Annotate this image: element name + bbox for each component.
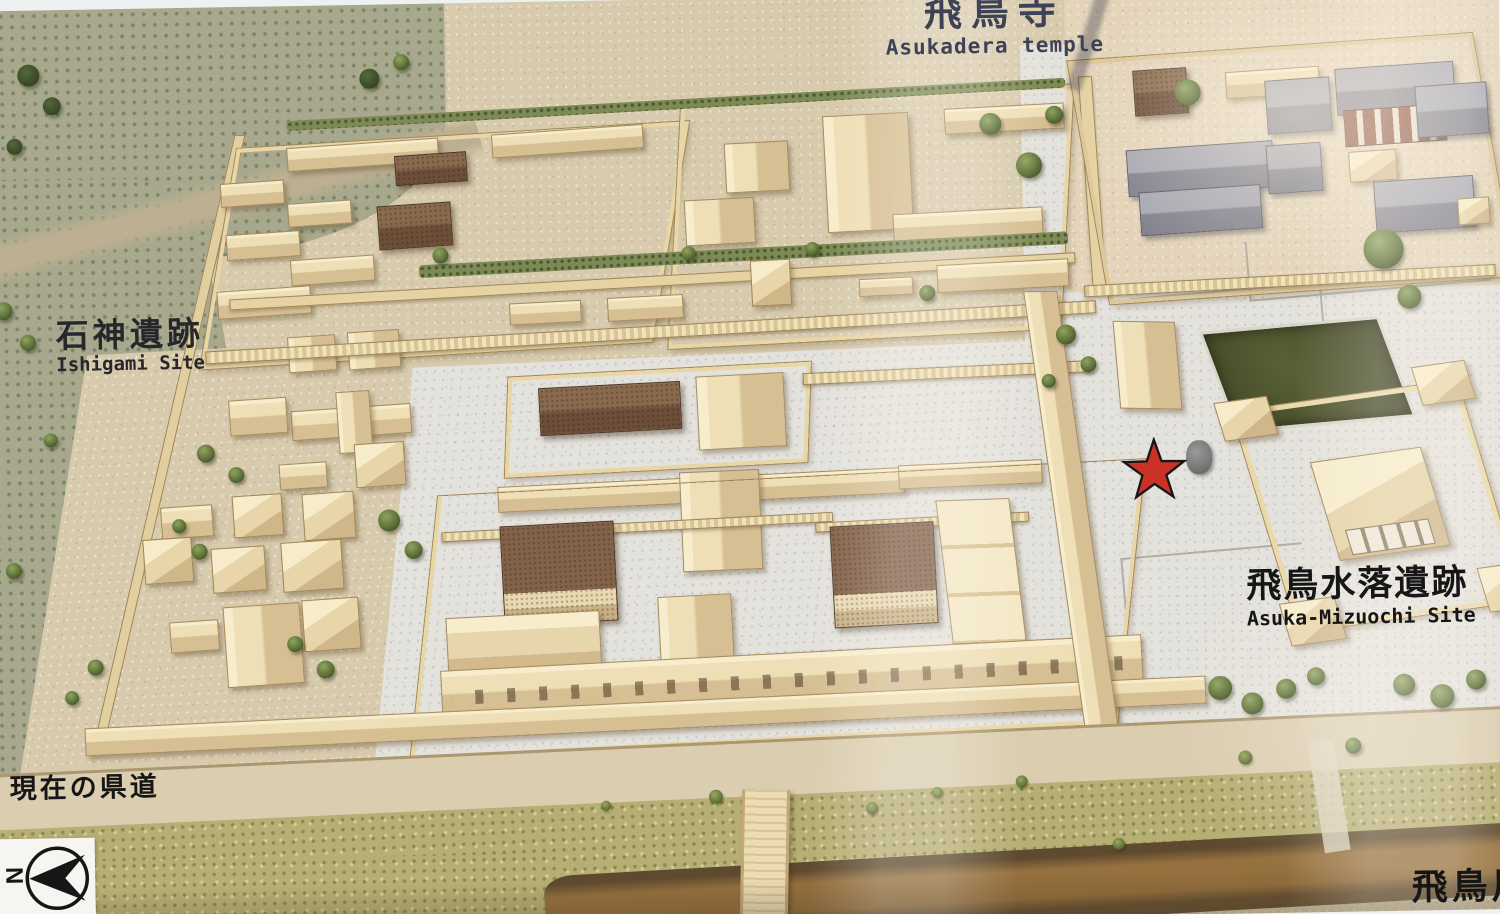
temple-building-gray-roof	[1414, 81, 1489, 138]
building-brown-roof	[377, 201, 454, 250]
building	[220, 180, 286, 208]
label-mizuochi: 飛鳥水落遺跡 Asuka-Mizuochi Site	[1246, 563, 1476, 629]
building-row	[607, 294, 684, 322]
temple-building-gray-roof	[1265, 142, 1323, 195]
building-brown-roof	[394, 151, 468, 186]
building-hut	[280, 539, 344, 593]
label-current-road: 現在の県道	[9, 764, 160, 806]
temple-building-gray-roof	[1264, 76, 1333, 134]
building	[228, 397, 288, 437]
temple-small-building	[1348, 149, 1398, 183]
label-asukadera: 飛鳥寺 Asukadera temple	[854, 0, 1135, 60]
compass-card: N	[0, 838, 96, 914]
label-ishigami: 石神遺跡 Ishigami Site	[56, 316, 206, 377]
label-ishigami-ja: 石神遺跡	[56, 316, 205, 355]
corner-pavilion	[1213, 396, 1278, 442]
hall-thatched-two-tier	[499, 521, 618, 627]
stone-mound	[1186, 440, 1213, 474]
building-hut	[301, 597, 361, 653]
building-low	[278, 461, 328, 490]
corner-pavilion	[1411, 360, 1476, 406]
building-low	[169, 619, 220, 653]
building-gable	[724, 140, 791, 193]
building-hut	[142, 537, 194, 585]
diorama-photo: 飛鳥寺 Asukadera temple 石神遺跡 Ishigami Site …	[0, 0, 1500, 914]
label-asuka-river: 飛鳥川	[1411, 857, 1500, 911]
location-star-marker	[1120, 436, 1189, 503]
building-gable	[1113, 321, 1183, 410]
building-row	[509, 300, 582, 326]
label-ishigami-en: Ishigami Site	[56, 352, 205, 377]
building	[225, 230, 301, 261]
building-row	[859, 276, 914, 297]
hall-thatched-two-tier	[830, 521, 939, 628]
building-tall-gable	[695, 372, 787, 451]
photo-board: 飛鳥寺 Asukadera temple 石神遺跡 Ishigami Site …	[0, 0, 1500, 914]
corner-pavilion	[1476, 560, 1500, 613]
building-hut	[301, 491, 356, 542]
label-asukadera-ja: 飛鳥寺	[854, 0, 1135, 36]
label-mizuochi-en: Asuka-Mizuochi Site	[1247, 602, 1476, 630]
label-mizuochi-ja: 飛鳥水落遺跡	[1246, 563, 1475, 605]
building-gable	[684, 197, 756, 247]
building	[287, 199, 353, 227]
building-hut	[232, 493, 285, 538]
temple-two-tier-roof	[1138, 184, 1263, 236]
compass-arrow-icon	[0, 838, 96, 914]
building-hut	[210, 545, 267, 594]
temple-small-pavilion	[1457, 196, 1491, 225]
label-asukadera-en: Asukadera temple	[855, 31, 1135, 60]
shrub	[601, 801, 611, 811]
building-gable	[160, 504, 214, 540]
hall-brown-roof	[538, 381, 682, 436]
building-hut	[750, 259, 792, 307]
building-hut	[354, 441, 407, 488]
bridge	[740, 790, 790, 914]
